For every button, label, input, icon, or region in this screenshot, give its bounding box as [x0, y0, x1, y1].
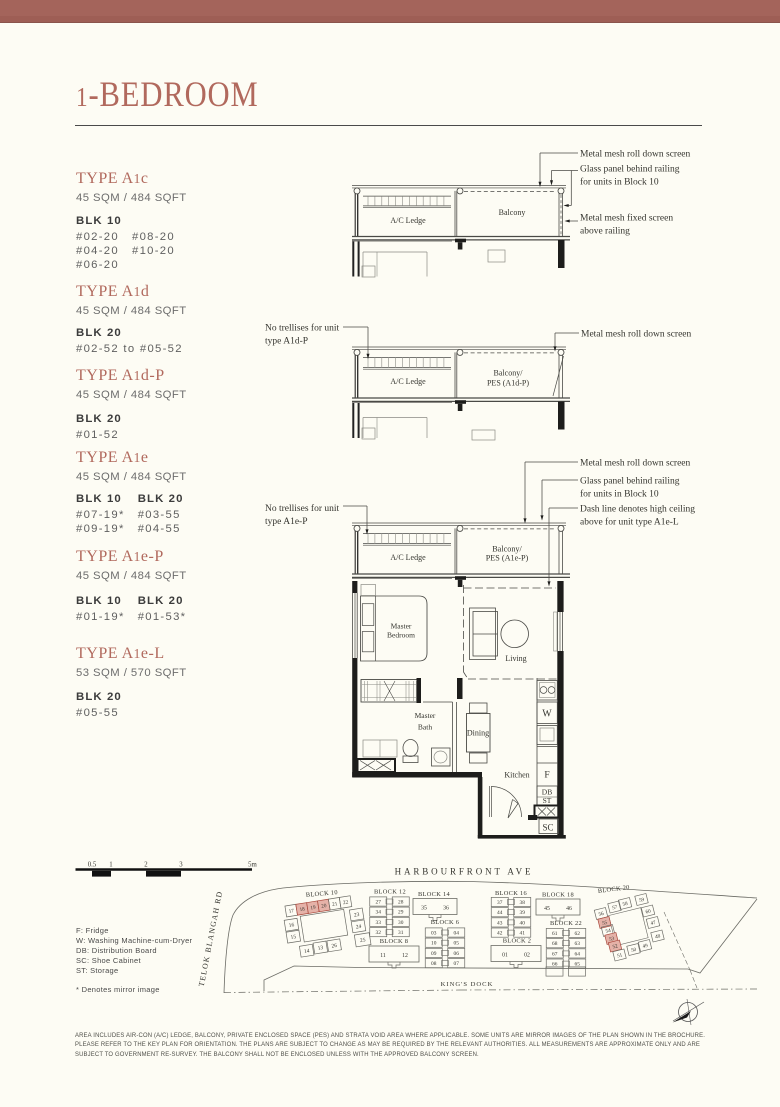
svg-text:No trellises for unit: No trellises for unit: [265, 323, 340, 334]
svg-text:41: 41: [520, 931, 526, 937]
svg-text:37: 37: [497, 900, 503, 906]
svg-text:type A1e-P: type A1e-P: [265, 517, 307, 527]
svg-text:Metal mesh roll down screen: Metal mesh roll down screen: [581, 330, 692, 340]
svg-text:Metal mesh roll down screen: Metal mesh roll down screen: [580, 459, 691, 469]
svg-text:BLOCK 14: BLOCK 14: [418, 891, 451, 898]
svg-text:63: 63: [575, 941, 581, 947]
svg-text:14: 14: [304, 948, 311, 955]
svg-text:08: 08: [431, 961, 437, 967]
svg-text:BLOCK 12: BLOCK 12: [374, 889, 406, 896]
svg-text:39: 39: [520, 910, 526, 916]
svg-text:Kitchen: Kitchen: [504, 771, 529, 780]
svg-text:48: 48: [654, 933, 661, 940]
svg-text:HARBOURFRONT AVE: HARBOURFRONT AVE: [395, 867, 534, 877]
svg-text:47: 47: [650, 920, 657, 927]
svg-text:57: 57: [611, 904, 618, 911]
svg-text:58: 58: [622, 901, 629, 908]
svg-text:W: W: [542, 709, 552, 720]
svg-text:29: 29: [398, 910, 404, 916]
svg-text:BLOCK 16: BLOCK 16: [495, 890, 527, 897]
svg-text:09: 09: [431, 951, 437, 957]
svg-text:50: 50: [630, 947, 637, 954]
svg-text:67: 67: [552, 951, 558, 957]
svg-text:64: 64: [575, 951, 581, 957]
svg-text:36: 36: [443, 906, 449, 912]
svg-text:for units in Block 10: for units in Block 10: [580, 489, 659, 500]
svg-text:Dining: Dining: [467, 729, 489, 738]
svg-text:38: 38: [520, 900, 526, 906]
svg-text:No trellises for unit: No trellises for unit: [265, 503, 340, 514]
svg-text:42: 42: [497, 931, 503, 937]
svg-text:A/C Ledge: A/C Ledge: [390, 216, 426, 225]
svg-text:type A1d-P: type A1d-P: [265, 337, 308, 347]
svg-text:BLOCK 8: BLOCK 8: [380, 938, 409, 945]
svg-text:Bedroom: Bedroom: [387, 631, 415, 640]
svg-text:Glass panel behind railing: Glass panel behind railing: [580, 165, 680, 175]
svg-text:17: 17: [288, 908, 294, 915]
svg-text:56: 56: [598, 911, 605, 918]
svg-text:46: 46: [566, 906, 572, 912]
svg-text:04: 04: [454, 930, 460, 936]
svg-text:02: 02: [524, 953, 530, 959]
svg-text:above for unit type A1e-L: above for unit type A1e-L: [580, 517, 679, 528]
svg-text:TELOK BLANGAH RD: TELOK BLANGAH RD: [197, 890, 224, 988]
svg-text:43: 43: [497, 920, 503, 926]
svg-text:15: 15: [290, 934, 297, 941]
svg-text:06: 06: [454, 951, 460, 957]
svg-text:PES (A1e-P): PES (A1e-P): [486, 554, 529, 563]
svg-text:Master: Master: [415, 711, 436, 720]
svg-text:Balcony: Balcony: [499, 208, 526, 217]
svg-text:45: 45: [544, 906, 550, 912]
svg-text:61: 61: [552, 931, 558, 937]
svg-text:03: 03: [431, 930, 437, 936]
svg-text:25: 25: [360, 937, 367, 944]
svg-text:Metal mesh fixed screen: Metal mesh fixed screen: [580, 213, 673, 224]
svg-text:07: 07: [454, 961, 460, 967]
svg-text:16: 16: [288, 922, 295, 929]
svg-text:11: 11: [380, 953, 386, 959]
svg-text:SC: SC: [542, 823, 553, 833]
svg-text:05: 05: [454, 941, 460, 947]
svg-text:Balcony/: Balcony/: [494, 369, 524, 378]
svg-text:1: 1: [109, 862, 112, 869]
svg-text:34: 34: [376, 910, 382, 916]
svg-text:30: 30: [398, 920, 404, 926]
svg-text:Master: Master: [391, 622, 412, 631]
svg-text:KING'S DOCK: KING'S DOCK: [441, 981, 494, 988]
svg-text:Bath: Bath: [418, 723, 432, 732]
svg-text:above railing: above railing: [580, 227, 630, 237]
svg-text:21: 21: [332, 901, 338, 908]
svg-text:28: 28: [398, 899, 404, 905]
svg-text:BLOCK 6: BLOCK 6: [431, 919, 460, 926]
svg-text:Balcony/: Balcony/: [492, 545, 522, 554]
svg-text:BLOCK 20: BLOCK 20: [597, 884, 630, 895]
svg-text:5m: 5m: [248, 862, 257, 869]
svg-text:60: 60: [645, 908, 652, 915]
svg-text:Living: Living: [505, 654, 526, 663]
svg-text:40: 40: [520, 920, 526, 926]
svg-text:27: 27: [376, 899, 382, 905]
svg-text:31: 31: [398, 930, 404, 936]
svg-text:26: 26: [331, 943, 338, 950]
svg-text:01: 01: [502, 953, 508, 959]
svg-text:32: 32: [376, 930, 382, 936]
svg-text:Metal mesh roll down screen: Metal mesh roll down screen: [580, 150, 691, 160]
svg-text:22: 22: [343, 899, 349, 906]
svg-text:51: 51: [616, 952, 623, 959]
svg-text:BLOCK 2: BLOCK 2: [503, 938, 532, 945]
svg-text:A/C Ledge: A/C Ledge: [390, 553, 426, 562]
svg-text:3: 3: [179, 862, 183, 869]
svg-text:BLOCK 22: BLOCK 22: [550, 920, 582, 927]
svg-text:PES (A1d-P): PES (A1d-P): [487, 379, 529, 388]
svg-text:62: 62: [575, 931, 581, 937]
svg-text:33: 33: [376, 920, 382, 926]
svg-text:A/C Ledge: A/C Ledge: [390, 377, 426, 386]
svg-text:23: 23: [354, 912, 361, 919]
svg-text:59: 59: [638, 897, 645, 904]
svg-text:12: 12: [402, 953, 408, 959]
svg-text:BLOCK 18: BLOCK 18: [542, 892, 574, 899]
svg-text:68: 68: [552, 941, 558, 947]
svg-text:44: 44: [497, 910, 503, 916]
svg-text:0.5: 0.5: [88, 862, 97, 869]
svg-text:13: 13: [317, 945, 324, 952]
svg-text:F: F: [544, 771, 549, 781]
svg-text:35: 35: [421, 906, 427, 912]
svg-text:ST: ST: [543, 796, 552, 805]
svg-text:for units in Block 10: for units in Block 10: [580, 177, 659, 188]
svg-text:BLOCK 10: BLOCK 10: [306, 889, 339, 899]
svg-text:Dash line denotes high ceiling: Dash line denotes high ceiling: [580, 505, 695, 515]
svg-text:Glass panel behind railing: Glass panel behind railing: [580, 477, 680, 487]
svg-text:10: 10: [431, 941, 437, 947]
svg-text:49: 49: [642, 943, 649, 950]
svg-text:24: 24: [356, 924, 363, 931]
svg-text:2: 2: [144, 862, 148, 869]
